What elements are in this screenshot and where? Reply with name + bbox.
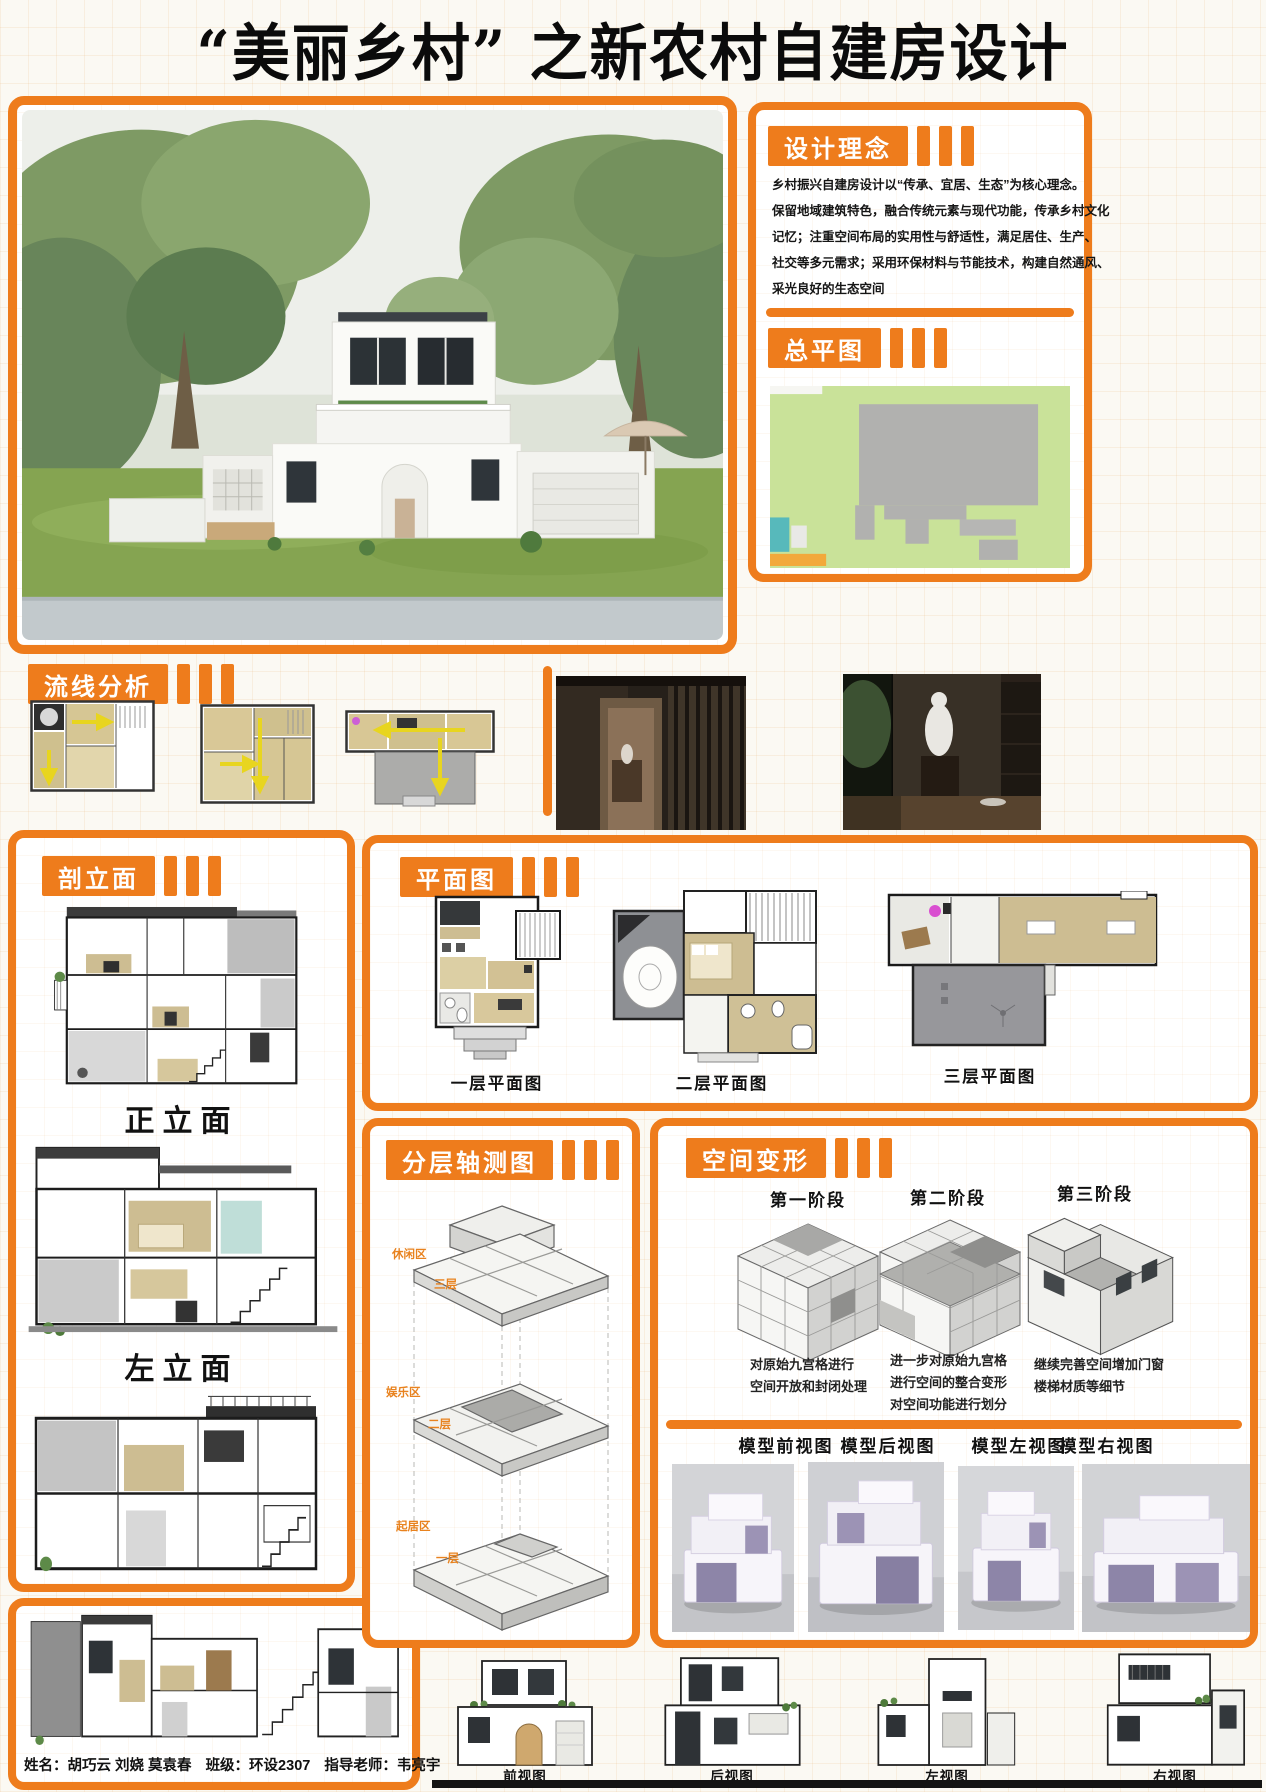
poster-title: “美丽乡村” 之新农村自建房设计 [0, 3, 1266, 92]
axo-floor-label: 三层 [434, 1276, 457, 1292]
circulation-header-label: 流线分析 [28, 664, 168, 704]
header-bar-icon [199, 664, 212, 704]
floor-plans-header: 平面图 [400, 857, 579, 897]
header-bar-icon [164, 856, 177, 896]
design-concept-header-label: 设计理念 [768, 126, 908, 166]
section-drawing-bottom [26, 1612, 404, 1746]
axo-floor-label: 二层 [428, 1416, 451, 1432]
axo-floor-label: 一层 [436, 1550, 459, 1566]
floor-plan-3-drawing [885, 891, 1160, 1049]
floor-plan-2-label: 二层平面图 [652, 1070, 792, 1094]
stage-2-cube-drawing [870, 1210, 1030, 1370]
circulation-plan-3 [345, 710, 495, 810]
transformation-header: 空间变形 [686, 1138, 892, 1178]
header-bar-icon [522, 857, 535, 897]
design-concept-header: 设计理念 [768, 126, 974, 166]
design-concept-text: 乡村振兴自建房设计以“传承、宜居、生态”为核心理念。 保留地域建筑特色，融合传统… [772, 172, 1110, 302]
stage-3-house-drawing [1018, 1206, 1183, 1371]
circulation-header: 流线分析 [28, 664, 234, 704]
concept-line: 记忆；注重空间布局的实用性与舒适性，满足居住、生产、 [772, 224, 1110, 250]
circulation-plan-2 [200, 704, 315, 804]
axo-zone-label: 娱乐区 [386, 1384, 421, 1400]
header-bar-icon [917, 126, 930, 166]
concept-line: 社交等多元需求；采用环保材料与节能技术，构建自然通风、 [772, 250, 1110, 276]
concept-line: 乡村振兴自建房设计以“传承、宜居、生态”为核心理念。 [772, 172, 1110, 198]
desc-line: 进行空间的整合变形 [890, 1372, 1007, 1394]
sections-header: 剖立面 [42, 856, 221, 896]
axonometric-header: 分层轴测图 [386, 1140, 619, 1180]
model-photo-left [958, 1466, 1074, 1630]
header-bar-icon [879, 1138, 892, 1178]
stage-1-label: 第一阶段 [748, 1186, 868, 1211]
stage-3-desc: 继续完善空间增加门窗 楼梯材质等细节 [1034, 1354, 1164, 1398]
header-bar-icon [208, 856, 221, 896]
credit-class: 班级：环设2307 [206, 1758, 311, 1774]
hero-render-image [22, 110, 723, 640]
desc-line: 空间开放和封闭处理 [750, 1376, 867, 1398]
elevation-left-drawing [855, 1655, 1040, 1770]
section-drawing-third [26, 1394, 341, 1576]
concept-line: 保留地域建筑特色，融合传统元素与现代功能，传承乡村文化 [772, 198, 1110, 224]
credit-names: 姓名：胡巧云 刘娆 莫袁春 [24, 1758, 192, 1774]
header-bar-icon [186, 856, 199, 896]
concept-line: 采光良好的生态空间 [772, 276, 1110, 302]
header-bar-icon [939, 126, 952, 166]
desc-line: 楼梯材质等细节 [1034, 1376, 1164, 1398]
axonometric-header-label: 分层轴测图 [386, 1140, 553, 1180]
floor-plan-3-label: 三层平面图 [920, 1063, 1060, 1087]
stage-3-label: 第三阶段 [1035, 1180, 1155, 1205]
desc-line: 对原始九宫格进行 [750, 1354, 867, 1376]
stage-2-desc: 进一步对原始九宫格 进行空间的整合变形 对空间功能进行划分 [890, 1350, 1007, 1416]
axonometric-panel: 分层轴测图 [362, 1118, 640, 1648]
desc-line: 对空间功能进行划分 [890, 1394, 1007, 1416]
elevation-right-drawing [1085, 1648, 1265, 1770]
left-section-label: 左立面 [16, 1344, 347, 1388]
desc-line: 继续完善空间增加门窗 [1034, 1354, 1164, 1376]
section-divider [666, 1420, 1242, 1429]
header-bar-icon [835, 1138, 848, 1178]
ground-line-bar [432, 1780, 1262, 1788]
floor-plan-2-drawing [610, 885, 820, 1065]
site-plan-drawing [770, 386, 1070, 568]
stage-1-desc: 对原始九宫格进行 空间开放和封闭处理 [750, 1354, 867, 1398]
poster: { "title": "“美丽乡村” 之新农村自建房设计", "design_c… [0, 0, 1266, 1792]
header-bar-icon [890, 328, 903, 368]
header-bar-icon [544, 857, 557, 897]
model-right-label: 模型右视图 [1047, 1432, 1167, 1457]
header-bar-icon [934, 328, 947, 368]
section-drawing-left [28, 1140, 338, 1336]
floor-plans-header-label: 平面图 [400, 857, 513, 897]
interior-photo-dining [843, 674, 1041, 830]
circulation-plan-1 [30, 700, 155, 792]
header-bar-icon [961, 126, 974, 166]
header-bar-icon [857, 1138, 870, 1178]
credit-teacher: 指导老师：韦亮宇 [324, 1758, 440, 1774]
concept-siteplan-panel: 设计理念 乡村振兴自建房设计以“传承、宜居、生态”为核心理念。 保留地域建筑特色… [748, 102, 1092, 582]
site-plan-header: 总平图 [768, 328, 947, 368]
model-photo-front [672, 1464, 794, 1632]
header-bar-icon [177, 664, 190, 704]
sections-panel: 剖立面 正立面 [8, 830, 355, 1592]
floor-plan-1-label: 一层平面图 [427, 1070, 567, 1094]
elevation-front-drawing [430, 1655, 620, 1770]
stage-1-cube-drawing [728, 1214, 888, 1374]
axo-zone-label: 起居区 [396, 1518, 431, 1534]
model-back-label: 模型后视图 [828, 1432, 948, 1457]
credits-row: 姓名：胡巧云 刘娆 莫袁春班级：环设2307指导老师：韦亮宇 [24, 1754, 454, 1775]
header-bar-icon [562, 1140, 575, 1180]
axo-zone-label: 休闲区 [392, 1246, 427, 1262]
vertical-divider [543, 666, 552, 816]
floor-plan-1-drawing [430, 893, 565, 1063]
header-bar-icon [584, 1140, 597, 1180]
credits-panel: 姓名：胡巧云 刘娆 莫袁春班级：环设2307指导老师：韦亮宇 [8, 1598, 420, 1790]
desc-line: 进一步对原始九宫格 [890, 1350, 1007, 1372]
sections-header-label: 剖立面 [42, 856, 155, 896]
stage-2-label: 第二阶段 [888, 1184, 1008, 1209]
header-bar-icon [912, 328, 925, 368]
floor-plans-panel: 平面图 一层平面图 [362, 835, 1258, 1111]
header-bar-icon [606, 1140, 619, 1180]
transformation-header-label: 空间变形 [686, 1138, 826, 1178]
section-drawing-front [32, 900, 332, 1092]
header-bar-icon [221, 664, 234, 704]
front-section-label: 正立面 [16, 1096, 347, 1140]
model-photo-back [808, 1462, 944, 1632]
header-bar-icon [566, 857, 579, 897]
interior-photo-hallway [556, 676, 746, 830]
transformation-panel: 空间变形 第一阶段 第二阶段 第三阶段 [650, 1118, 1258, 1648]
site-plan-header-label: 总平图 [768, 328, 881, 368]
model-photo-right [1082, 1464, 1250, 1632]
hero-render-panel [8, 96, 737, 654]
elevation-back-drawing [640, 1652, 825, 1770]
section-divider [766, 308, 1074, 317]
